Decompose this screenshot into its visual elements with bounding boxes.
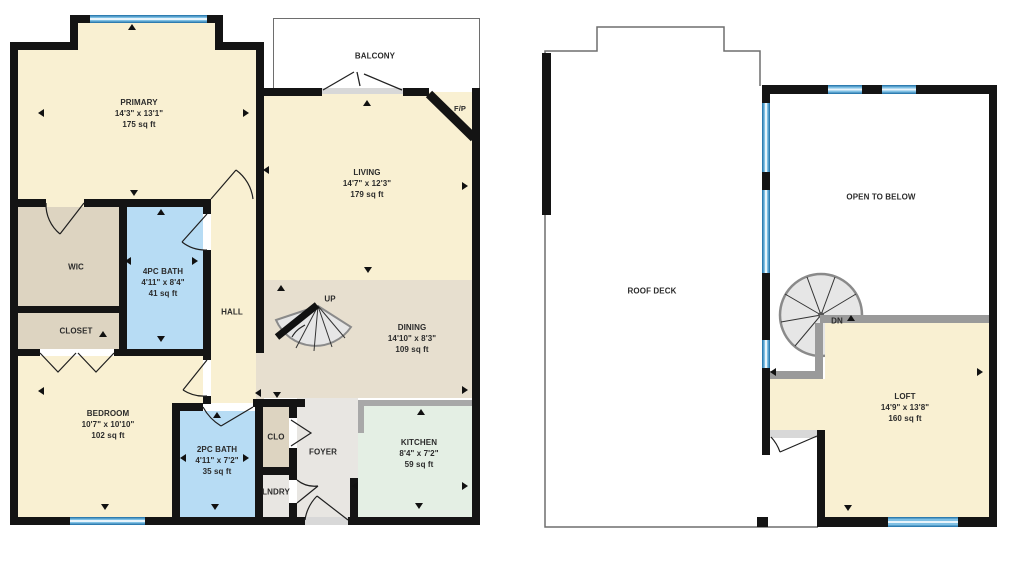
room-area: 35 sq ft xyxy=(195,466,238,477)
room-label-balcony: BALCONY xyxy=(355,52,395,63)
direction-arrow xyxy=(211,504,219,510)
direction-arrow xyxy=(364,267,372,273)
direction-arrow xyxy=(770,368,776,376)
room-dims: 14'3" x 13'1" xyxy=(115,109,163,120)
direction-arrow xyxy=(99,331,107,337)
direction-arrow xyxy=(130,190,138,196)
direction-arrow xyxy=(243,109,249,117)
room-dims: 4'11" x 7'2" xyxy=(195,456,238,467)
room-name: OPEN TO BELOW xyxy=(846,193,915,204)
room-name: DN xyxy=(831,317,843,328)
room-label-fp: F/P xyxy=(454,104,466,114)
direction-arrow xyxy=(977,368,983,376)
room-name: KITCHEN xyxy=(399,438,438,449)
direction-arrow xyxy=(847,315,855,321)
room-name: LNDRY xyxy=(262,488,290,499)
room-label-open-to-below: OPEN TO BELOW xyxy=(846,193,915,204)
room-label-roof-deck: ROOF DECK xyxy=(628,287,677,298)
direction-arrow xyxy=(128,24,136,30)
room-name: WIC xyxy=(68,263,84,274)
direction-arrow xyxy=(263,166,269,174)
room-label-wic: WIC xyxy=(68,263,84,274)
room-name: ROOF DECK xyxy=(628,287,677,298)
room-label-hall: HALL xyxy=(221,308,243,319)
direction-arrow xyxy=(462,482,468,490)
room-name: BEDROOM xyxy=(82,409,135,420)
room-label-4pc-bath: 4PC BATH 4'11" x 8'4" 41 sq ft xyxy=(141,267,184,299)
room-area: 102 sq ft xyxy=(82,430,135,441)
room-label-primary: PRIMARY 14'3" x 13'1" 175 sq ft xyxy=(115,98,163,130)
room-label-loft: LOFT 14'9" x 13'8" 160 sq ft xyxy=(881,392,929,424)
direction-arrow xyxy=(157,209,165,215)
room-label-kitchen: KITCHEN 8'4" x 7'2" 59 sq ft xyxy=(399,438,438,470)
room-name: UP xyxy=(324,295,335,306)
room-label-bedroom: BEDROOM 10'7" x 10'10" 102 sq ft xyxy=(82,409,135,441)
direction-arrow xyxy=(415,503,423,509)
direction-arrow xyxy=(277,285,285,291)
room-area: 41 sq ft xyxy=(141,288,184,299)
spiral-stair-up xyxy=(276,305,351,351)
direction-arrow xyxy=(157,336,165,342)
room-area: 160 sq ft xyxy=(881,413,929,424)
room-label-dining: DINING 14'10" x 8'3" 109 sq ft xyxy=(388,323,436,355)
stair-label-up: UP xyxy=(324,295,335,306)
direction-arrow xyxy=(255,389,261,397)
direction-arrow xyxy=(180,454,186,462)
room-dims: 14'7" x 12'3" xyxy=(343,179,391,190)
floor-plan-canvas: PRIMARY 14'3" x 13'1" 175 sq ft WIC CLOS… xyxy=(0,0,1024,568)
direction-arrow xyxy=(462,386,468,394)
room-name: PRIMARY xyxy=(115,98,163,109)
direction-arrow xyxy=(273,392,281,398)
room-name: DINING xyxy=(388,323,436,334)
room-dims: 10'7" x 10'10" xyxy=(82,420,135,431)
room-name: FOYER xyxy=(309,448,337,459)
room-label-closet: CLOSET xyxy=(59,327,92,338)
room-dims: 4'11" x 8'4" xyxy=(141,278,184,289)
room-area: 175 sq ft xyxy=(115,119,163,130)
direction-arrow xyxy=(101,504,109,510)
room-name: BALCONY xyxy=(355,52,395,63)
direction-arrow xyxy=(462,182,468,190)
direction-arrow xyxy=(38,109,44,117)
direction-arrow xyxy=(844,505,852,511)
direction-arrow xyxy=(192,257,198,265)
room-area: 59 sq ft xyxy=(399,459,438,470)
stair-label-dn: DN xyxy=(831,317,843,328)
direction-arrow xyxy=(125,257,131,265)
room-name: 2PC BATH xyxy=(195,445,238,456)
room-label-living: LIVING 14'7" x 12'3" 179 sq ft xyxy=(343,168,391,200)
direction-arrow xyxy=(243,454,249,462)
room-name: LIVING xyxy=(343,168,391,179)
direction-arrow xyxy=(417,409,425,415)
room-name: HALL xyxy=(221,308,243,319)
room-area: 179 sq ft xyxy=(343,189,391,200)
room-name: CLO xyxy=(267,433,284,444)
room-name: 4PC BATH xyxy=(141,267,184,278)
room-label-2pc-bath: 2PC BATH 4'11" x 7'2" 35 sq ft xyxy=(195,445,238,477)
direction-arrow xyxy=(352,482,358,490)
direction-arrow xyxy=(363,100,371,106)
room-label-lndry: LNDRY xyxy=(262,488,290,499)
room-dims: 14'10" x 8'3" xyxy=(388,334,436,345)
room-name: F/P xyxy=(454,104,466,114)
room-label-clo: CLO xyxy=(267,433,284,444)
room-label-foyer: FOYER xyxy=(309,448,337,459)
direction-arrow xyxy=(38,387,44,395)
room-area: 109 sq ft xyxy=(388,344,436,355)
direction-arrow xyxy=(213,412,221,418)
fireplace-diagonal-wall xyxy=(429,94,474,138)
room-name: LOFT xyxy=(881,392,929,403)
room-dims: 14'9" x 13'8" xyxy=(881,403,929,414)
room-dims: 8'4" x 7'2" xyxy=(399,449,438,460)
sliding-door xyxy=(323,72,402,90)
room-name: CLOSET xyxy=(59,327,92,338)
